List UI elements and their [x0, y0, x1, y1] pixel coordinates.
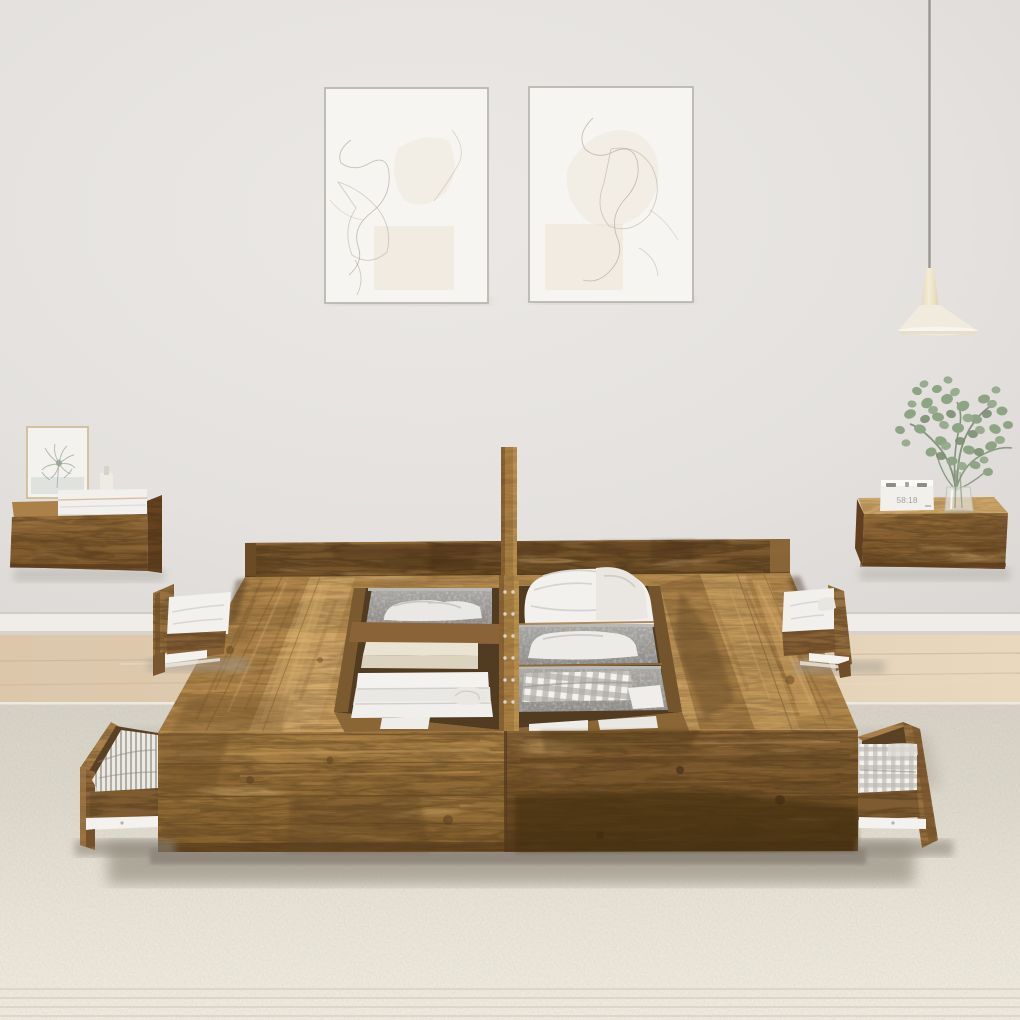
- svg-text:58:18: 58:18: [896, 495, 918, 505]
